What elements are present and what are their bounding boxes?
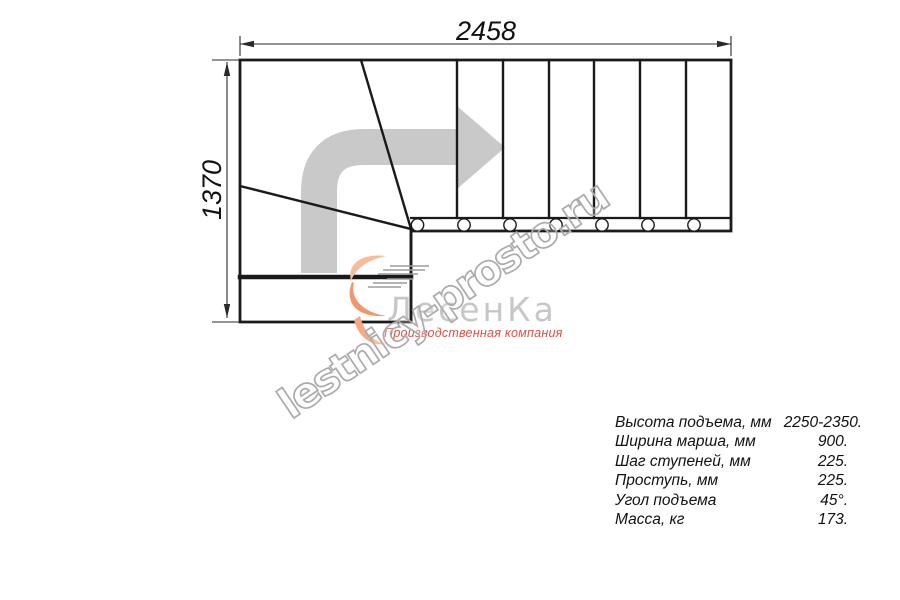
dim-arrow-right-icon [717,41,731,47]
spec-row: Высота подъема, мм 2250-2350. [615,413,848,432]
spec-label: Масса, кг [615,510,684,529]
dimension-width-label: 2458 [455,16,516,46]
spec-row: Шаг ступеней, мм 225. [615,452,848,471]
dim-arrow-left-icon [240,41,254,47]
dimension-height: 1370 [197,60,240,322]
dimension-height-label: 1370 [197,160,227,220]
spec-label: Ширина марша, мм [615,432,756,451]
spec-label: Угол подъема [615,491,716,510]
spec-label: Шаг ступеней, мм [615,452,751,471]
spec-row: Ширина марша, мм 900. [615,432,848,451]
direction-arrow-head [457,106,505,189]
spec-value: 2250-2350. [772,413,862,432]
spec-table: Высота подъема, мм 2250-2350. Ширина мар… [615,413,848,529]
spec-value: 173. [806,510,848,529]
dimension-width: 2458 [240,16,731,56]
spec-label: Проступь, мм [615,471,718,490]
spec-row: Проступь, мм 225. [615,471,848,490]
spec-row: Угол подъема 45°. [615,491,848,510]
spec-value: 225. [806,471,848,490]
dim-arrow-down-icon [224,304,230,318]
spec-value: 45°. [808,491,848,510]
dim-arrow-up-icon [224,62,230,76]
spec-label: Высота подъема, мм [615,413,772,432]
stair-plan-page: 2458 1370 [0,0,900,600]
spec-value: 225. [806,452,848,471]
spec-value: 900. [806,432,848,451]
spec-row: Масса, кг 173. [615,510,848,529]
